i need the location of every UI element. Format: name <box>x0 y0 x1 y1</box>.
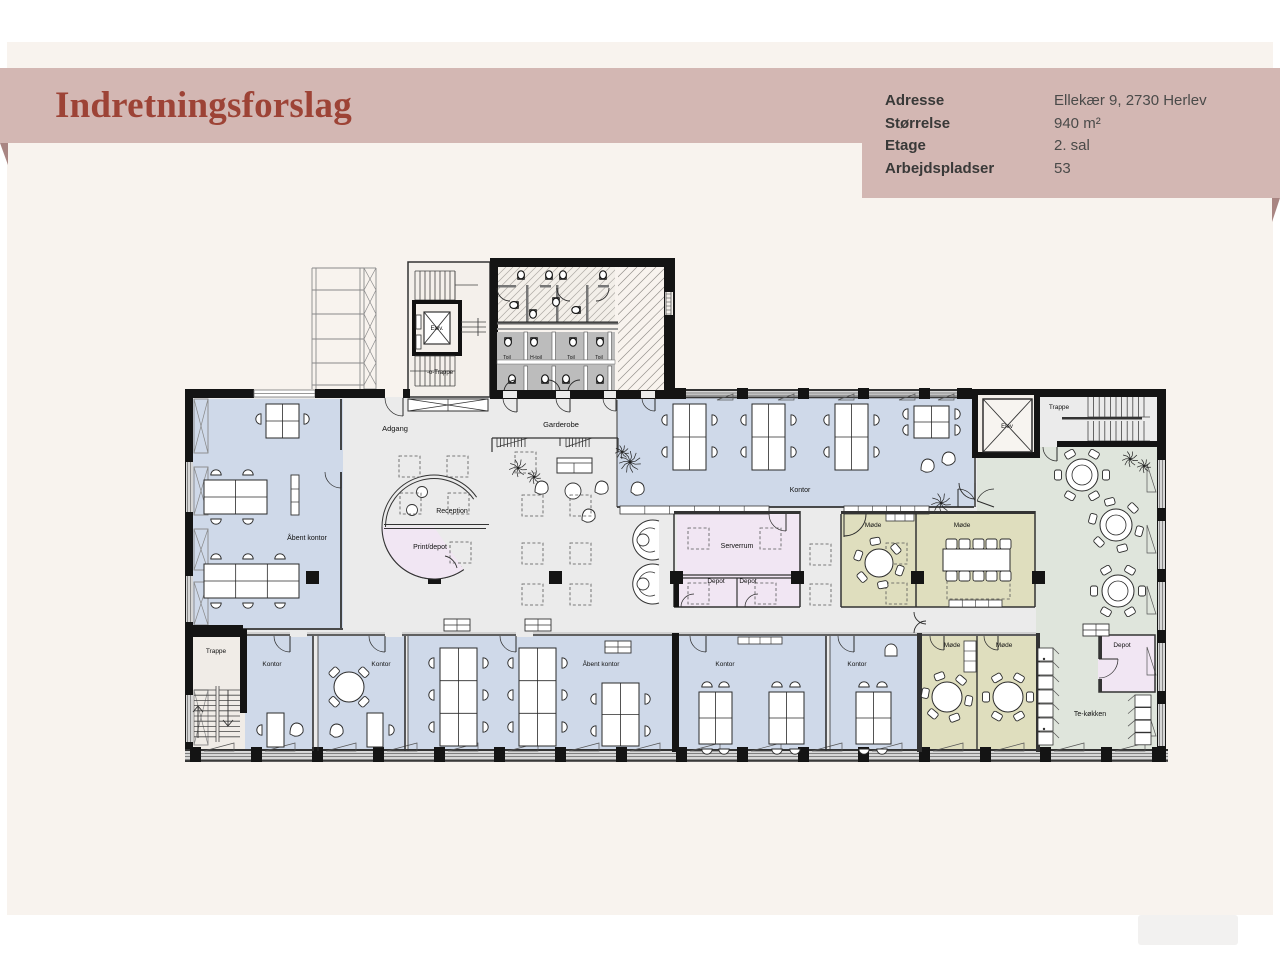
svg-text:Te-køkken: Te-køkken <box>1074 711 1106 718</box>
svg-text:Toil: Toil <box>567 355 575 361</box>
svg-text:Depot: Depot <box>707 578 725 585</box>
svg-text:Trappe: Trappe <box>1049 404 1070 411</box>
svg-text:Depot: Depot <box>739 578 757 585</box>
svg-text:Elev: Elev <box>1001 424 1013 430</box>
svg-text:Møde: Møde <box>944 642 961 649</box>
svg-text:Garderobe: Garderobe <box>543 420 579 429</box>
svg-text:Toil: Toil <box>595 355 603 361</box>
svg-text:Trappe: Trappe <box>206 648 227 655</box>
svg-text:Møde: Møde <box>996 642 1013 649</box>
svg-text:Kontor: Kontor <box>262 661 282 668</box>
svg-text:Adgang: Adgang <box>382 424 408 433</box>
svg-text:Møde: Møde <box>954 522 971 529</box>
svg-text:Elev.: Elev. <box>431 326 444 332</box>
svg-text:Kontor: Kontor <box>715 661 735 668</box>
svg-text:Serverrum: Serverrum <box>721 543 754 550</box>
svg-text:Toil: Toil <box>503 355 511 361</box>
svg-text:Kontor: Kontor <box>790 487 811 494</box>
svg-text:H-toil: H-toil <box>530 355 542 361</box>
svg-text:Kontor: Kontor <box>847 661 867 668</box>
svg-text:Åbent kontor: Åbent kontor <box>583 659 621 668</box>
svg-text:-o-Trappe: -o-Trappe <box>427 370 454 376</box>
svg-text:Møde: Møde <box>865 522 882 529</box>
svg-text:Depot: Depot <box>1113 642 1131 649</box>
svg-text:Åbent kontor: Åbent kontor <box>287 533 327 542</box>
svg-text:Print/depot: Print/depot <box>413 544 447 551</box>
svg-text:Kontor: Kontor <box>371 661 391 668</box>
